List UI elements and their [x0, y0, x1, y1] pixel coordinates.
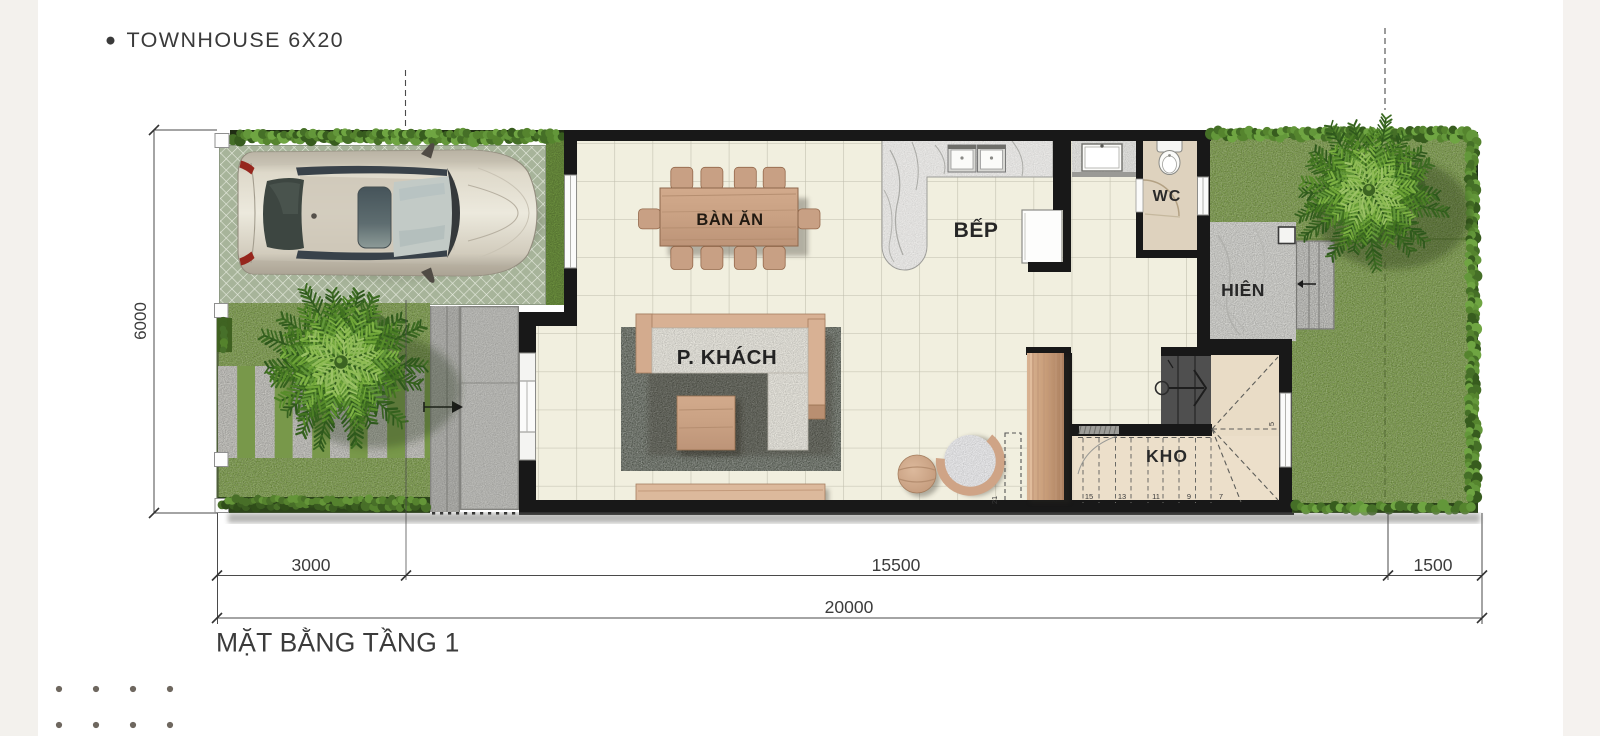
- svg-text:TOWNHOUSE 6X20: TOWNHOUSE 6X20: [127, 28, 345, 52]
- svg-text:5: 5: [1267, 422, 1276, 426]
- svg-text:20000: 20000: [825, 597, 874, 617]
- svg-text:3000: 3000: [292, 555, 331, 575]
- svg-text:BẾP: BẾP: [954, 219, 999, 242]
- svg-text:6000: 6000: [131, 302, 150, 340]
- svg-text:15500: 15500: [872, 555, 921, 575]
- svg-text:13: 13: [1118, 492, 1126, 501]
- svg-text:HIÊN: HIÊN: [1221, 279, 1265, 300]
- svg-text:KHO: KHO: [1146, 446, 1188, 466]
- svg-text:11: 11: [1152, 492, 1160, 501]
- svg-text:9: 9: [1187, 492, 1191, 501]
- svg-text:MẶT BẰNG TẦNG 1: MẶT BẰNG TẦNG 1: [216, 628, 460, 658]
- svg-text:21: 21: [990, 496, 999, 504]
- svg-text:P. KHÁCH: P. KHÁCH: [677, 346, 777, 369]
- svg-text:WC: WC: [1153, 188, 1182, 205]
- svg-text:15: 15: [1085, 492, 1093, 501]
- svg-text:BÀN ĂN: BÀN ĂN: [696, 210, 763, 229]
- svg-text:1500: 1500: [1414, 555, 1453, 575]
- svg-text:7: 7: [1219, 492, 1223, 501]
